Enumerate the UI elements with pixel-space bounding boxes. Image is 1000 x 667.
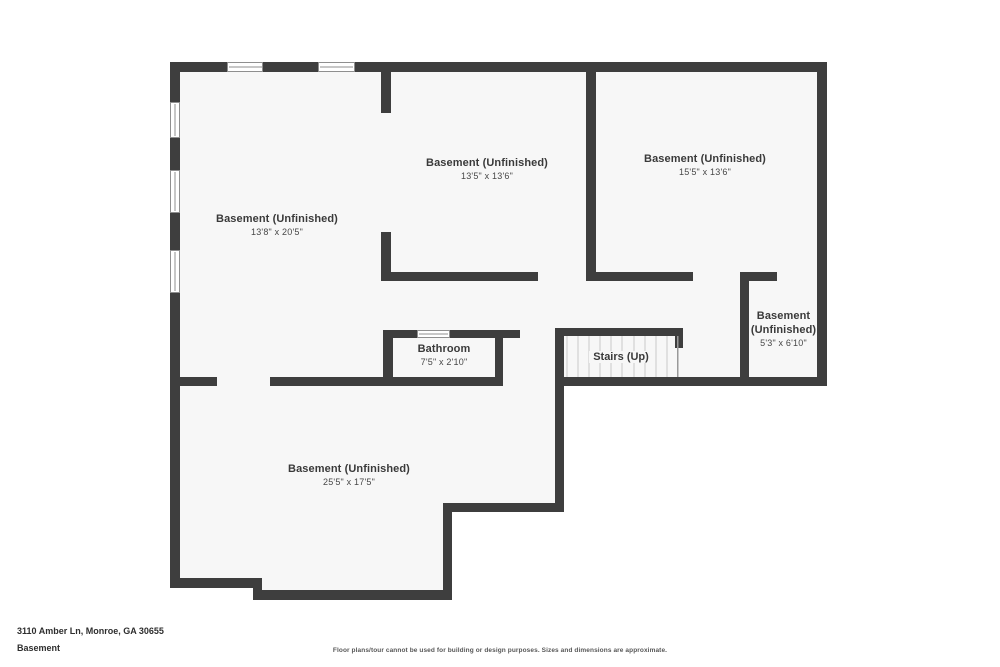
room-dims: 15'5" x 13'6" xyxy=(605,166,805,179)
wall-segment xyxy=(586,62,596,281)
room-name: Bathroom xyxy=(394,342,494,356)
room-name: Basement (Unfinished) xyxy=(249,462,449,476)
window-icon xyxy=(418,331,450,338)
room-dims: 13'5" x 13'6" xyxy=(387,170,587,183)
floor-plan-drawing xyxy=(0,0,1000,667)
window-icon xyxy=(228,63,263,72)
wall-segment xyxy=(586,272,693,281)
window-icon xyxy=(171,251,180,293)
wall-segment xyxy=(555,377,827,386)
room-name: Basement (Unfinished) xyxy=(741,309,826,337)
wall-segment xyxy=(170,377,217,386)
room-dims: 25'5" x 17'5" xyxy=(249,476,449,489)
room-label-bathroom: Bathroom 7'5" x 2'10" xyxy=(394,342,494,369)
room-label-basement-middle: Basement (Unfinished) 13'5" x 13'6" xyxy=(387,156,587,183)
room-dims: 13'8" x 20'5" xyxy=(177,226,377,239)
wall-segment xyxy=(675,328,683,348)
room-name: Basement (Unfinished) xyxy=(605,152,805,166)
room-name: Basement (Unfinished) xyxy=(177,212,377,226)
footer-disclaimer: Floor plans/tour cannot be used for buil… xyxy=(0,647,1000,654)
wall-segment xyxy=(170,578,262,588)
window-icon xyxy=(319,63,355,72)
wall-segment xyxy=(170,62,827,72)
wall-segment xyxy=(555,328,683,336)
room-dims: 7'5" x 2'10" xyxy=(394,356,494,369)
stairs-label-text: Stairs (Up) xyxy=(589,351,653,363)
footer-address: 3110 Amber Ln, Monroe, GA 30655 xyxy=(17,626,164,636)
room-label-basement-small: Basement (Unfinished) 5'3" x 6'10" xyxy=(741,309,826,350)
window-icon xyxy=(171,171,180,213)
room-label-basement-left: Basement (Unfinished) 13'8" x 20'5" xyxy=(177,212,377,239)
room-name: Basement (Unfinished) xyxy=(387,156,587,170)
wall-segment xyxy=(450,330,520,338)
wall-segment xyxy=(381,62,391,113)
wall-segment xyxy=(170,62,180,588)
room-label-basement-right: Basement (Unfinished) 15'5" x 13'6" xyxy=(605,152,805,179)
wall-segment xyxy=(495,330,503,382)
wall-segment xyxy=(381,272,538,281)
floor-plan-page: Basement (Unfinished) 13'8" x 20'5" Base… xyxy=(0,0,1000,667)
wall-segment xyxy=(443,503,452,600)
wall-segment xyxy=(443,503,564,512)
wall-segment xyxy=(383,330,393,382)
room-dims: 5'3" x 6'10" xyxy=(741,337,826,350)
room-label-basement-bottom: Basement (Unfinished) 25'5" x 17'5" xyxy=(249,462,449,489)
stairs-label: Stairs (Up) xyxy=(561,350,681,364)
window-icon xyxy=(171,103,180,138)
wall-segment xyxy=(253,590,452,600)
